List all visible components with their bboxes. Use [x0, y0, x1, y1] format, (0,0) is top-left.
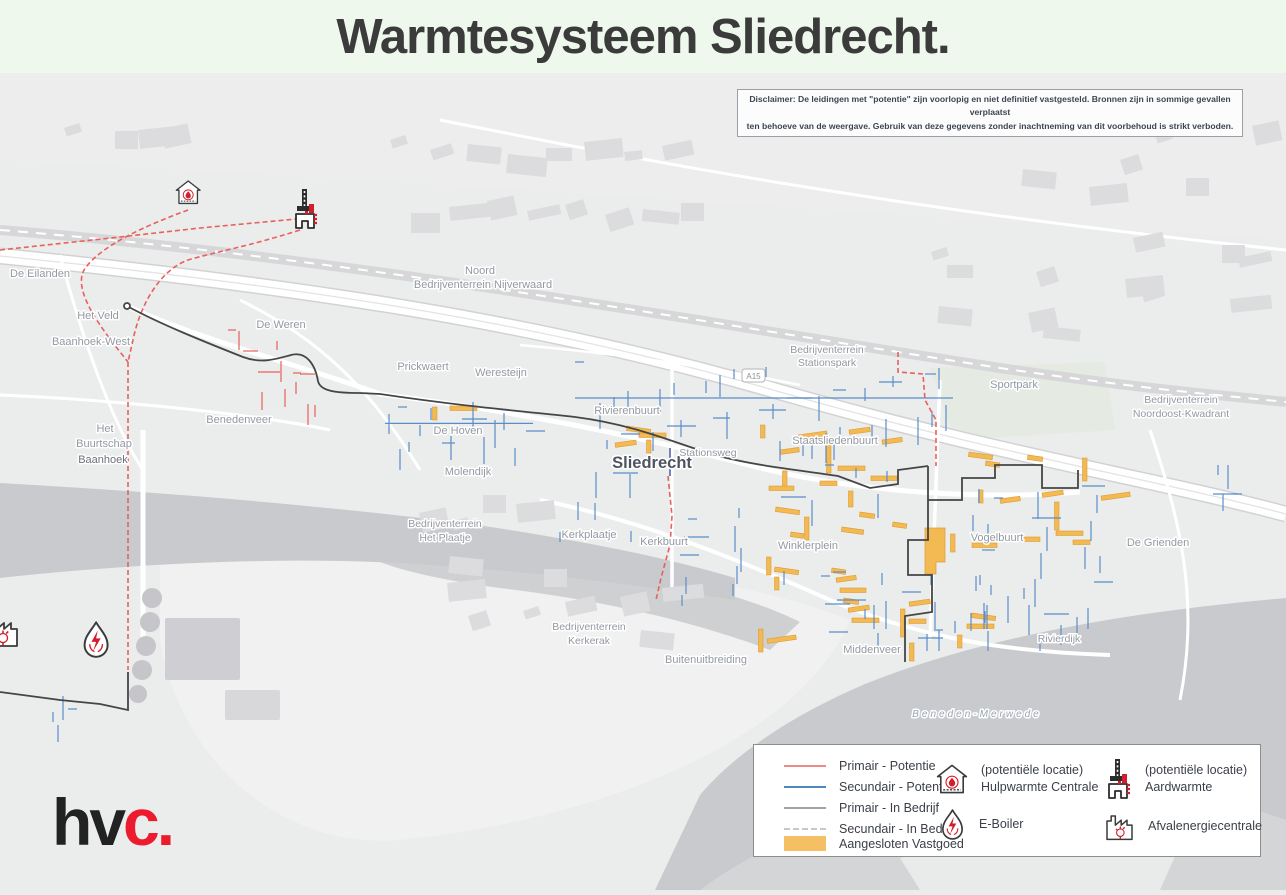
disclaimer-box: Disclaimer: De leidingen met "potentie" … — [737, 89, 1243, 137]
secundair-potentie-line-sample — [784, 786, 826, 788]
map-label: Kerkplaatje — [561, 529, 616, 541]
map-label: Baanhoek-West — [52, 336, 130, 348]
hulpwarmte-house-icon — [936, 763, 968, 795]
map-label: Kerkbuurt — [640, 536, 688, 548]
map-label: Benedenveer — [206, 414, 272, 426]
logo-text: hv — [52, 785, 123, 859]
eboiler-flame-icon — [939, 808, 966, 841]
map-label: Stationspark — [798, 357, 857, 369]
map-label: Rivierdijk — [1038, 633, 1081, 645]
map-label: Baanhoek — [78, 454, 128, 466]
map-label: Stationsweg — [679, 447, 736, 459]
map-label: Sportpark — [990, 379, 1038, 391]
svg-text:A15: A15 — [746, 372, 761, 381]
disclaimer-line2: ten behoeve van de weergave. Gebruik van… — [747, 121, 1234, 131]
map-label: Noord — [465, 265, 495, 277]
river-label: Beneden-Merwede — [912, 709, 1042, 720]
primair-potentie-line-sample — [784, 765, 826, 767]
legend-label: (potentiële locatie) — [981, 763, 1083, 777]
legend-item-primair-in-bedrijf: Primair - In Bedrijf — [784, 801, 939, 815]
legend-item-eboiler: E-Boiler — [939, 808, 1023, 841]
map-label: Het Plaatje — [419, 532, 471, 544]
legend-label: (potentiële locatie) — [1145, 763, 1247, 777]
logo-accent: c — [123, 785, 157, 859]
afvalenergiecentrale-factory-icon — [1104, 811, 1135, 841]
legend-label: E-Boiler — [979, 817, 1023, 831]
map-label: Noordoost-Kwadrant — [1133, 408, 1229, 420]
legend-item-secundair-potentie: Secundair - Potentie — [784, 780, 952, 794]
legend-item-secundair-in-bedrijf: Secundair - In Bedrijf — [784, 822, 956, 836]
aangesloten-vastgoed-swatch — [784, 836, 826, 851]
map-label: Bedrijventerrein — [408, 518, 482, 530]
map-label: Staatsliedenbuurt — [792, 435, 878, 447]
map-label: Rivierenbuurt — [594, 405, 659, 417]
legend-item-aangesloten-vastgoed: Aangesloten Vastgoed — [784, 836, 964, 851]
page-title: Warmtesysteem Sliedrecht. — [336, 9, 949, 65]
legend-label: Aardwarmte — [1145, 780, 1212, 794]
map-label: De Eilanden — [10, 268, 70, 280]
legend: Primair - Potentie Secundair - Potentie … — [753, 744, 1261, 857]
legend-label: Primair - Potentie — [839, 759, 936, 773]
primair-in-bedrijf-line-sample — [784, 807, 826, 809]
legend-item-aardwarmte: (potentiële locatie)Aardwarmte — [1106, 759, 1247, 799]
map-label: Bedrijventerrein Nijverwaard — [414, 279, 552, 291]
disclaimer-line1: Disclaimer: De leidingen met "potentie" … — [749, 94, 1230, 117]
map-label: Middenveer — [843, 644, 901, 656]
map-label: Kerkerak — [568, 635, 611, 647]
map-label: Het — [96, 423, 113, 435]
map-label: Buurtschap — [76, 438, 132, 450]
map-label: Weresteijn — [475, 367, 527, 379]
map-label: Buitenuitbreiding — [665, 654, 747, 666]
legend-label: Hulpwarmte Centrale — [981, 780, 1098, 794]
legend-item-hulpwarmte: (potentiële locatie)Hulpwarmte Centrale — [936, 762, 1098, 796]
pipe-start-node — [124, 303, 130, 309]
map-label: De Hoven — [434, 425, 483, 437]
map-label: Prickwaert — [397, 361, 448, 373]
hvc-logo: hvc. — [52, 784, 172, 860]
map-label: Bedrijventerrein — [1144, 394, 1218, 406]
map-label: Vogelbuurt — [971, 532, 1024, 544]
map-label: Bedrijventerrein — [790, 344, 864, 356]
map-label: Molendijk — [445, 466, 492, 478]
aardwarmte-derrick-icon — [1106, 759, 1132, 799]
map-label: De Weren — [256, 319, 305, 331]
map-label: Het Veld — [77, 310, 119, 322]
map-label: Bedrijventerrein — [552, 621, 626, 633]
highway-shield-a15: A15 — [742, 369, 765, 382]
legend-item-afvalenergiecentrale: Afvalenergiecentrale — [1104, 811, 1262, 841]
legend-label: Primair - In Bedrijf — [839, 801, 939, 815]
secundair-in-bedrijf-line-sample — [784, 828, 826, 830]
title-band: Warmtesysteem Sliedrecht. — [0, 0, 1286, 73]
logo-dot: . — [157, 785, 172, 859]
legend-label: Afvalenergiecentrale — [1148, 819, 1262, 833]
map-label: Winklerplein — [778, 540, 838, 552]
map-label: De Grienden — [1127, 537, 1189, 549]
legend-item-primair-potentie: Primair - Potentie — [784, 759, 936, 773]
